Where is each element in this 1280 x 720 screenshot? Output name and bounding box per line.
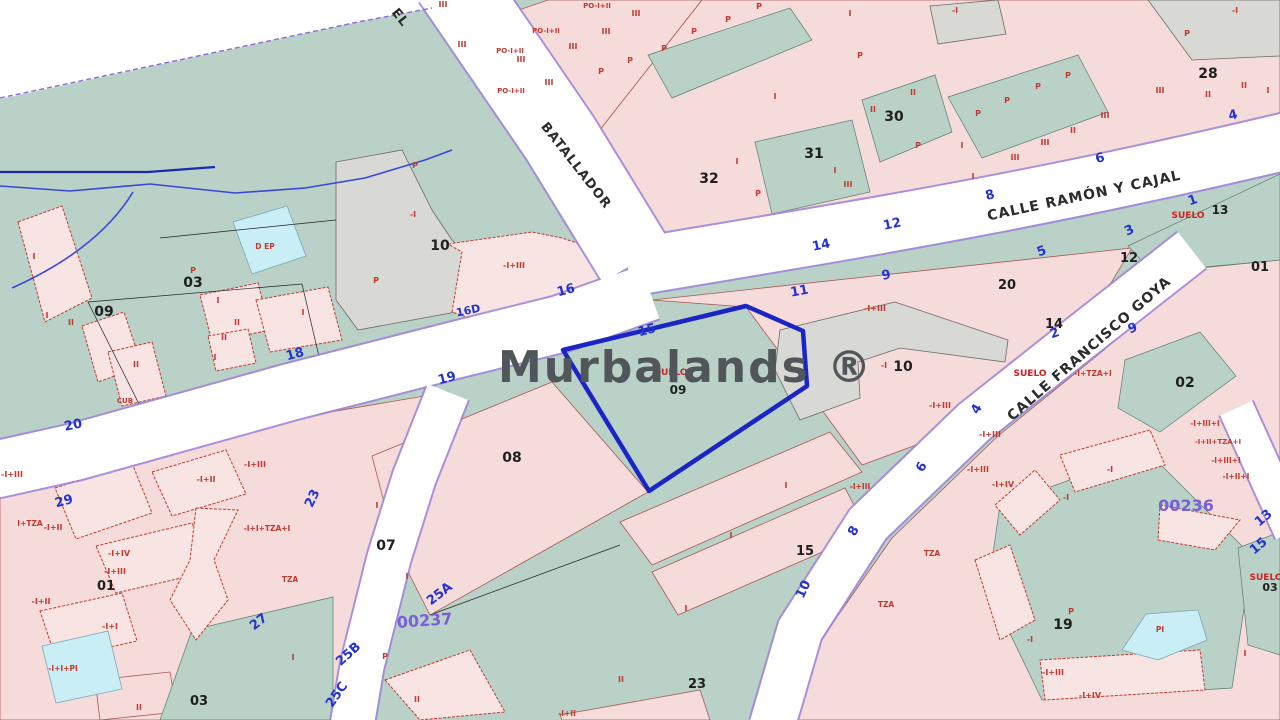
building-label: -I+III: [979, 430, 1001, 439]
building-label: -I: [1027, 635, 1033, 644]
building-label: III: [1041, 138, 1050, 147]
building-label: TZA: [878, 600, 895, 609]
building-label: -I+IV: [108, 549, 131, 558]
building-label: -I+II: [44, 523, 63, 532]
building-label: P: [725, 15, 731, 24]
building-label: I: [302, 308, 305, 317]
building-label: I: [376, 501, 379, 510]
building-label: I: [214, 353, 217, 362]
building-label: -I+III: [929, 401, 951, 410]
building-label: P: [756, 2, 762, 11]
parcel-number[interactable]: 20: [998, 278, 1016, 293]
parcel-number[interactable]: 10: [430, 238, 450, 254]
building-label: P: [975, 109, 981, 118]
building-label: II: [870, 105, 876, 114]
building-label: P: [661, 44, 667, 53]
building-label: III: [439, 0, 448, 9]
parcel-number[interactable]: 09: [94, 304, 113, 320]
building-label: II: [68, 318, 74, 327]
building-label: I: [1267, 86, 1270, 95]
building-label: TZA: [924, 549, 941, 558]
building-label: P: [1004, 96, 1010, 105]
building-label: I: [406, 572, 409, 581]
parcel-number[interactable]: 07: [376, 538, 395, 554]
building-label: D EP: [255, 242, 275, 251]
building-label: II: [618, 675, 624, 684]
district-code: 00236: [1158, 496, 1214, 515]
building-label: III: [458, 40, 467, 49]
building-label: III: [545, 78, 554, 87]
building-label: -I: [1063, 493, 1069, 502]
building-label: -I: [952, 6, 958, 15]
parcel-number[interactable]: 19: [1053, 617, 1072, 633]
parcel-number[interactable]: 12: [1120, 251, 1138, 266]
building-label: I: [834, 166, 837, 175]
building-label: I: [961, 141, 964, 150]
building-label: II: [414, 695, 420, 704]
building-label: I: [785, 481, 788, 490]
building-label: -I+II+I: [1223, 472, 1250, 481]
building-label: II: [221, 333, 227, 342]
building-label: P: [755, 189, 761, 198]
building-label: I: [730, 531, 733, 540]
building-label: -I+III: [850, 482, 871, 491]
building-label: -I+III: [1042, 668, 1064, 677]
building-label: -I: [881, 361, 887, 370]
building-label: II: [1205, 90, 1211, 99]
building-label: P: [1184, 29, 1190, 38]
suelo-label: SUELO: [1249, 573, 1280, 583]
building-label: P: [373, 276, 379, 285]
building-label: -I+I+PI: [48, 664, 78, 673]
parcel-number[interactable]: 28: [1198, 66, 1217, 82]
parcel-number[interactable]: 15: [796, 544, 814, 559]
building-label: I+TZA: [17, 519, 43, 528]
building-label: P: [691, 27, 697, 36]
building-label: -I+III+I: [1190, 419, 1220, 428]
building-label: P: [857, 51, 863, 60]
building-label: -I: [1107, 465, 1113, 474]
house-number: 11: [789, 283, 809, 301]
building-label: III: [844, 180, 853, 189]
building-label: -I+IV: [992, 480, 1015, 489]
building-label: PO-I+II: [532, 27, 560, 35]
building-label: P: [382, 652, 388, 661]
building-label: I: [736, 157, 739, 166]
building-label: TZA: [282, 575, 299, 584]
building-label: II: [234, 318, 240, 327]
building-label: III: [1156, 86, 1165, 95]
building-label: P: [1035, 82, 1041, 91]
parcel-number[interactable]: 13: [1212, 203, 1229, 217]
building-label: I: [685, 604, 688, 613]
building-label: -I+TZA+I: [1074, 369, 1112, 378]
building-label: -I+I+TZA+I: [244, 524, 291, 533]
building-label: P: [412, 161, 418, 170]
building-label: -I+III: [503, 261, 525, 270]
cadastral-map: ELBATALLADORCALLE RAMÓN Y CAJALCALLE FRA…: [0, 0, 1280, 720]
parcel-number[interactable]: 10: [893, 359, 913, 375]
building-label: -I+III: [1, 470, 23, 479]
building-label: III: [517, 55, 526, 64]
building-label: III: [602, 27, 611, 36]
parcel-number[interactable]: 03: [183, 275, 202, 291]
suelo-label: SUELO: [1013, 369, 1046, 379]
building-label: PO-I+II: [583, 2, 611, 10]
building-label: -I+III: [244, 460, 266, 469]
building-label: I: [972, 172, 975, 181]
building-label: I: [1244, 649, 1247, 658]
building-label: -I+III: [864, 304, 886, 313]
building-label: -I+II: [32, 597, 51, 606]
parcel-number[interactable]: 31: [804, 146, 823, 162]
building-label: P: [627, 56, 633, 65]
building-label: II: [910, 88, 916, 97]
building-label: I: [849, 9, 852, 18]
building-label: III: [1101, 111, 1110, 120]
building-label: P: [1065, 71, 1071, 80]
district-code: 00237: [396, 609, 453, 632]
building-label: -I+III: [967, 465, 989, 474]
building-label: III: [632, 9, 641, 18]
cadastral-map-viewport: ELBATALLADORCALLE RAMÓN Y CAJALCALLE FRA…: [0, 0, 1280, 720]
building-label: I: [46, 311, 49, 320]
parcel-number[interactable]: 23: [688, 677, 706, 692]
building-label: III: [569, 42, 578, 51]
building-label: -I+I: [102, 622, 118, 631]
parcel-number[interactable]: 32: [699, 171, 718, 187]
building-label: I: [292, 653, 295, 662]
building-label: -I+IV: [1079, 691, 1102, 700]
building-label: P: [190, 266, 196, 275]
building-label: P: [598, 67, 604, 76]
building-label: -I+II: [197, 475, 216, 484]
building-label: -I+III+I: [1211, 456, 1241, 465]
building-label: PI: [1156, 625, 1164, 634]
building-label: I: [33, 252, 36, 261]
building-label: -I: [410, 210, 416, 219]
building-label: -I: [1232, 6, 1238, 15]
building-label: P: [1068, 607, 1074, 616]
parcel-number[interactable]: 08: [502, 450, 521, 466]
building-label: PO-I+II: [496, 47, 524, 55]
watermark: Murbalands ®: [498, 342, 873, 393]
suelo-label: SUELO: [1171, 211, 1204, 221]
building-label: II: [1070, 126, 1076, 135]
building-label: -I+II+TZA+I: [1195, 438, 1241, 446]
parcel-number[interactable]: 01: [1251, 260, 1269, 275]
building-label: II: [133, 360, 139, 369]
building-label: I: [774, 92, 777, 101]
building-label: P: [915, 141, 921, 150]
building-label: I: [217, 296, 220, 305]
parcel-number[interactable]: 02: [1175, 375, 1194, 391]
parcel-number[interactable]: 30: [884, 109, 904, 125]
building-label: -I+II: [558, 709, 576, 718]
building-label: CUB: [117, 397, 133, 405]
parcel-number[interactable]: 01: [97, 579, 115, 594]
building-label: PO-I+II: [497, 87, 525, 95]
parcel-number[interactable]: 03: [190, 694, 208, 709]
building-label: II: [136, 703, 142, 712]
building-label: II: [1241, 81, 1247, 90]
building-label: III: [1011, 153, 1020, 162]
building-label: -I+III: [104, 567, 126, 576]
